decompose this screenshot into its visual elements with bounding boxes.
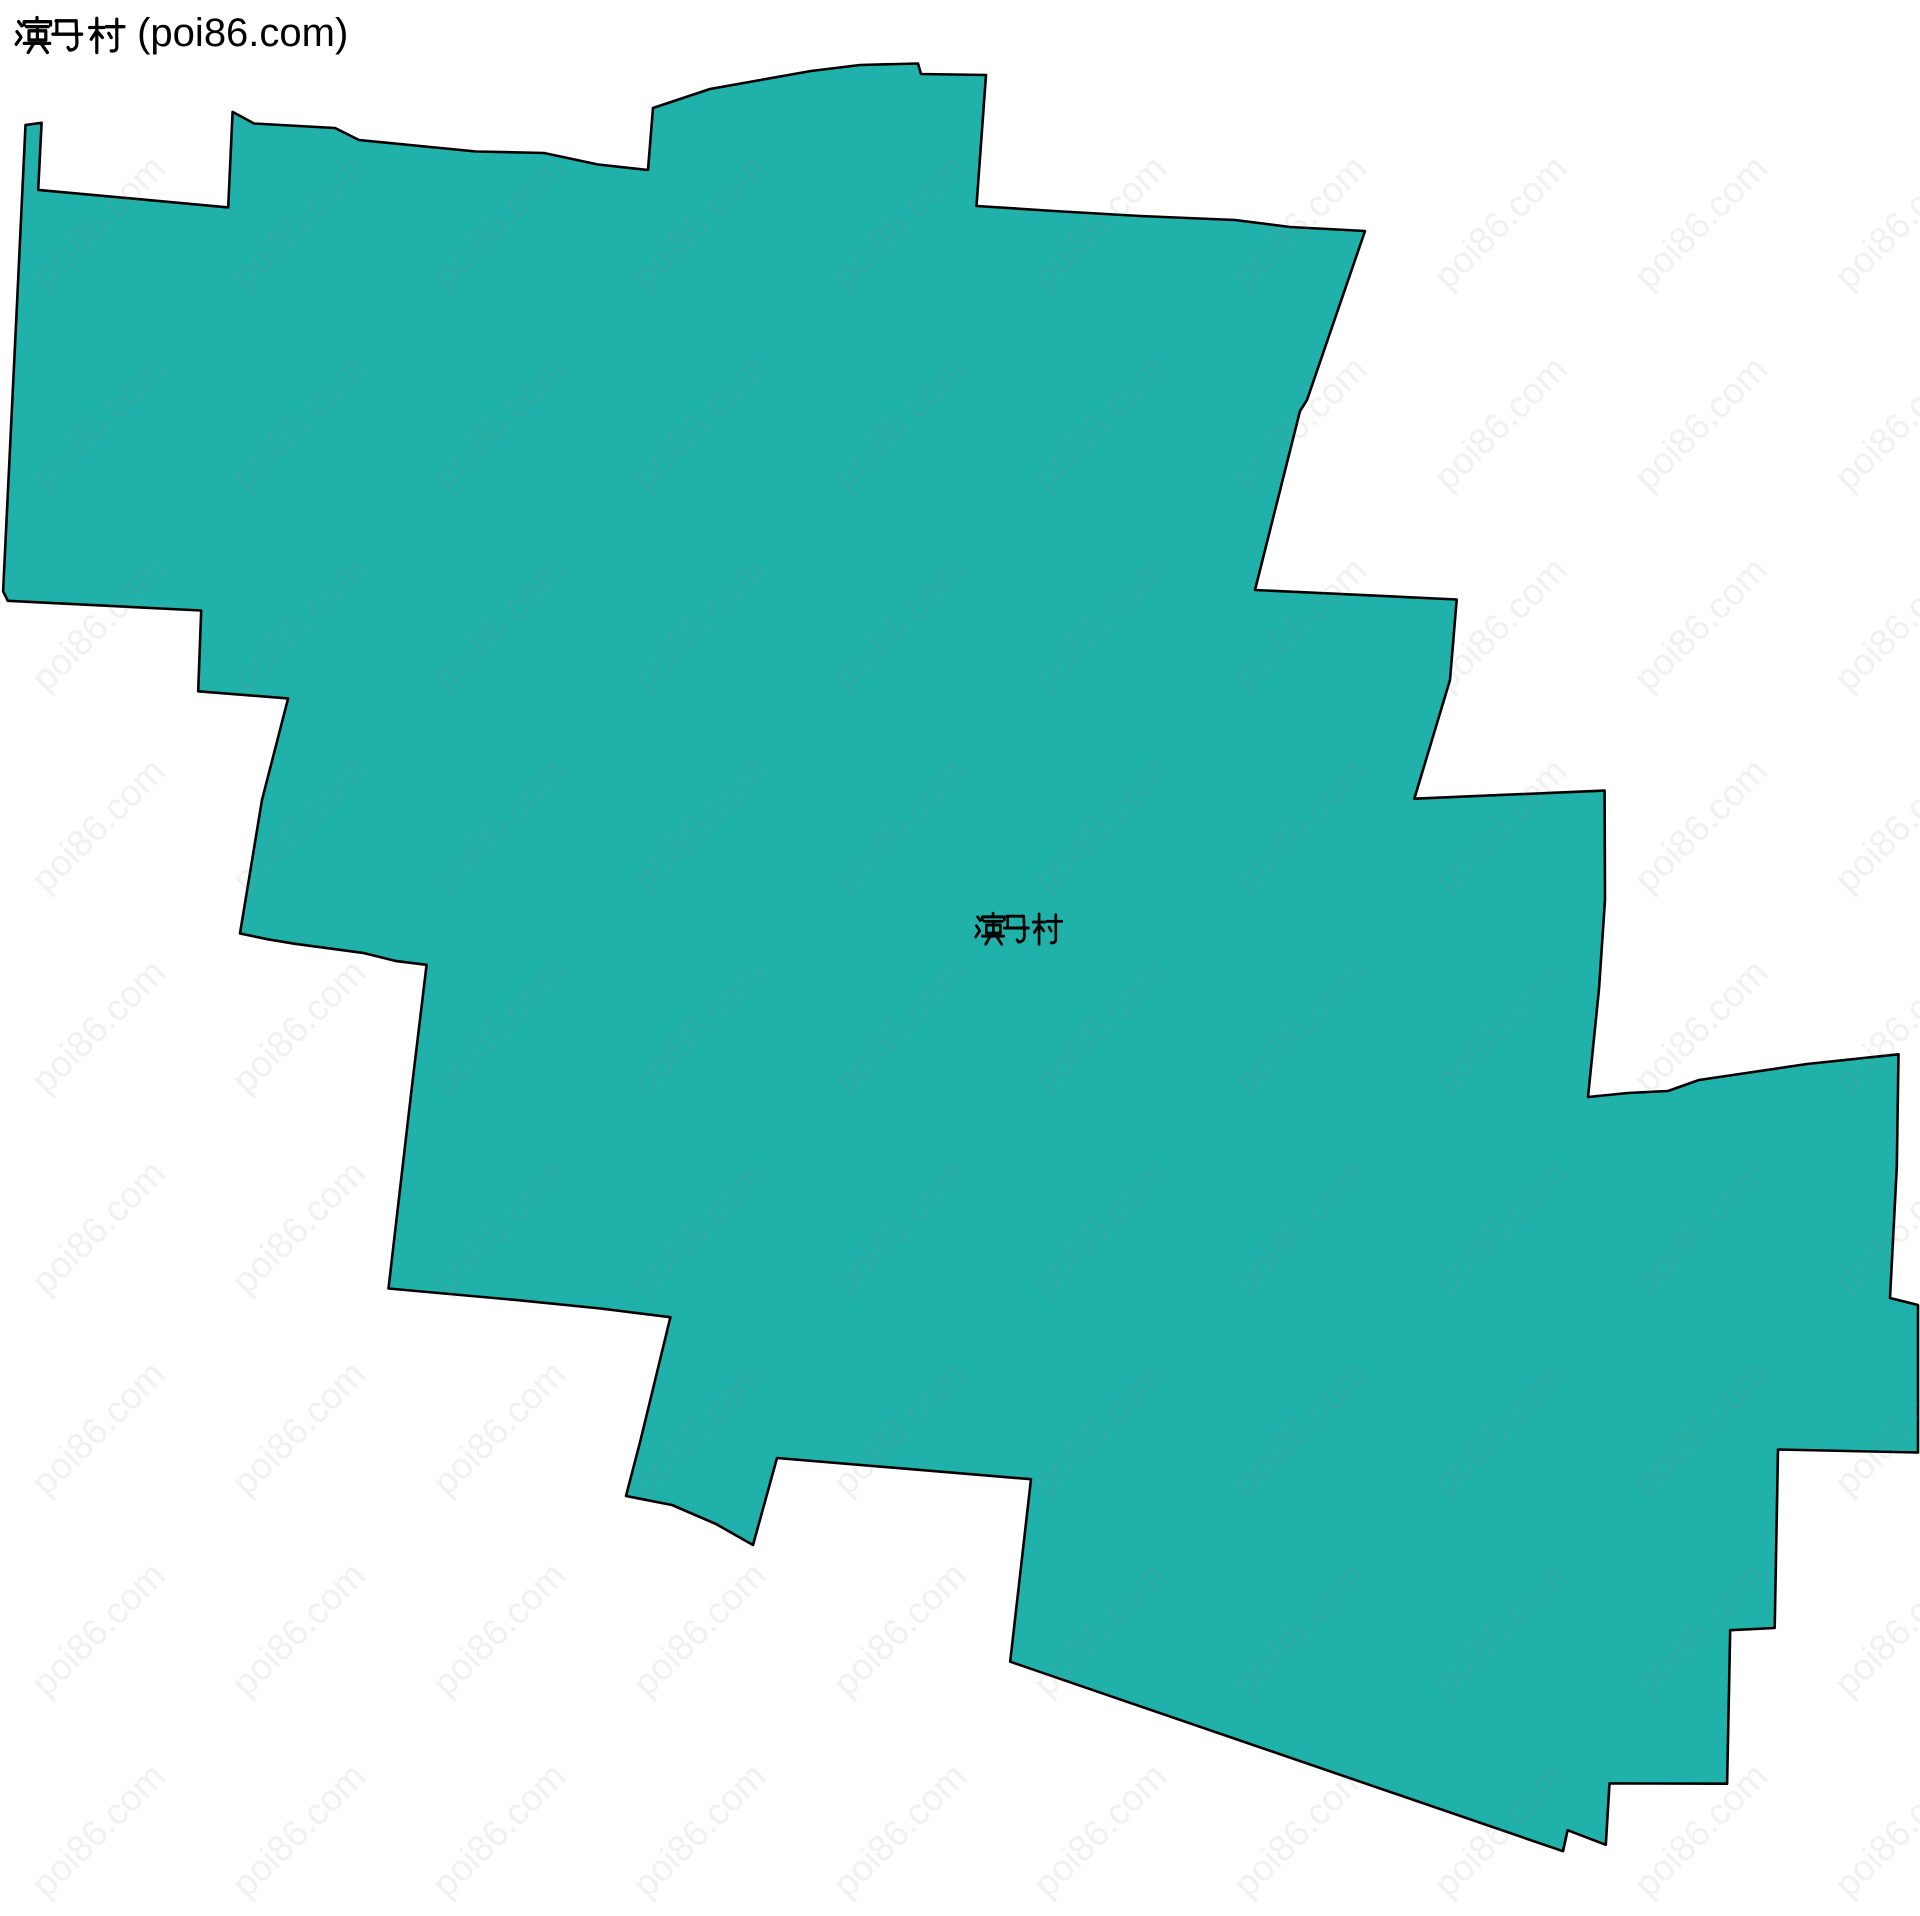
svg-text:poi86.com: poi86.com xyxy=(1826,147,1920,297)
svg-text:poi86.com: poi86.com xyxy=(824,1554,974,1704)
svg-text:poi86.com: poi86.com xyxy=(23,1353,173,1503)
svg-text:poi86.com: poi86.com xyxy=(424,1353,574,1503)
svg-text:poi86.com: poi86.com xyxy=(23,1755,173,1905)
svg-text:poi86.com: poi86.com xyxy=(1626,549,1776,699)
svg-text:poi86.com: poi86.com xyxy=(1425,147,1575,297)
svg-text:poi86.com: poi86.com xyxy=(23,951,173,1101)
svg-text:poi86.com: poi86.com xyxy=(1425,348,1575,498)
svg-text:poi86.com: poi86.com xyxy=(1826,750,1920,900)
svg-text:poi86.com: poi86.com xyxy=(624,1755,774,1905)
svg-text:poi86.com: poi86.com xyxy=(424,1755,574,1905)
svg-text:(poi86.com): (poi86.com) xyxy=(126,11,348,55)
svg-text:poi86.com: poi86.com xyxy=(1626,147,1776,297)
svg-text:poi86.com: poi86.com xyxy=(1826,549,1920,699)
svg-text:poi86.com: poi86.com xyxy=(1225,1755,1375,1905)
svg-text:poi86.com: poi86.com xyxy=(1025,1755,1175,1905)
svg-text:poi86.com: poi86.com xyxy=(224,1554,374,1704)
svg-text:poi86.com: poi86.com xyxy=(23,1554,173,1704)
svg-text:poi86.com: poi86.com xyxy=(1826,1554,1920,1704)
svg-text:poi86.com: poi86.com xyxy=(224,1152,374,1302)
svg-text:poi86.com: poi86.com xyxy=(624,1554,774,1704)
svg-text:poi86.com: poi86.com xyxy=(824,1755,974,1905)
svg-text:poi86.com: poi86.com xyxy=(1826,951,1920,1101)
svg-text:poi86.com: poi86.com xyxy=(224,1353,374,1503)
svg-text:poi86.com: poi86.com xyxy=(1826,348,1920,498)
svg-text:poi86.com: poi86.com xyxy=(224,1755,374,1905)
svg-text:poi86.com: poi86.com xyxy=(23,750,173,900)
svg-text:poi86.com: poi86.com xyxy=(23,1152,173,1302)
svg-text:poi86.com: poi86.com xyxy=(424,1554,574,1704)
svg-text:poi86.com: poi86.com xyxy=(1826,1755,1920,1905)
svg-text:poi86.com: poi86.com xyxy=(224,951,374,1101)
svg-text:poi86.com: poi86.com xyxy=(1626,348,1776,498)
svg-text:poi86.com: poi86.com xyxy=(1626,750,1776,900)
